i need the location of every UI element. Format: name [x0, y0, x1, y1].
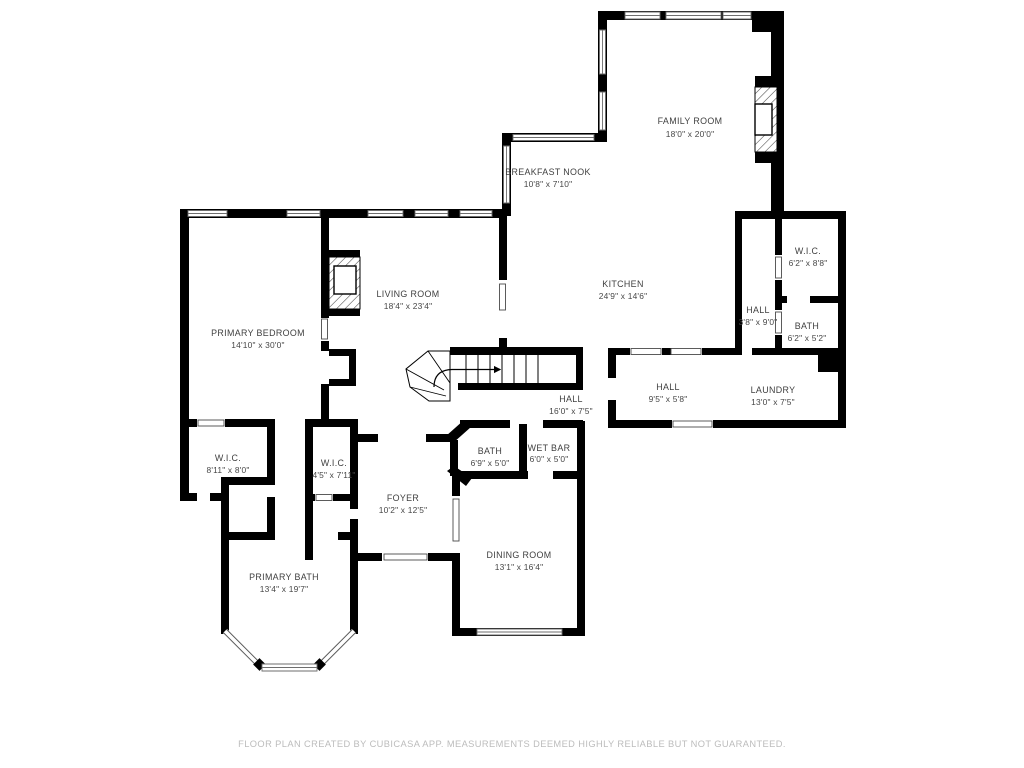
- door: [671, 349, 701, 355]
- room-dims-hall-main: 16'0" x 7'5": [549, 406, 593, 416]
- room-label-laundry: LAUNDRY: [751, 385, 796, 395]
- room-label-family-room: FAMILY ROOM: [658, 116, 723, 126]
- room-dims-bath-right: 6'2" x 5'2": [788, 333, 827, 343]
- room-dims-wic-upper-right: 6'2" x 8'8": [789, 258, 828, 268]
- windows: [188, 12, 751, 635]
- room-dims-hall-right: 3'8" x 9'0": [739, 317, 778, 327]
- window-icon: [666, 12, 721, 19]
- floor-plan-page: FAMILY ROOM 18'0" x 20'0" BREAKFAST NOOK…: [0, 0, 1024, 768]
- room-label-foyer: FOYER: [387, 493, 419, 503]
- room-label-wet-bar: WET BAR: [528, 443, 571, 453]
- bay-window-icon: [223, 629, 355, 671]
- family-room-fireplace-icon: [755, 87, 777, 152]
- door: [198, 420, 224, 426]
- window-icon: [600, 92, 606, 130]
- room-label-kitchen: KITCHEN: [602, 279, 643, 289]
- window-icon: [188, 211, 227, 217]
- window-icon: [287, 211, 320, 217]
- window-icon: [460, 211, 492, 217]
- room-dims-kitchen: 24'9" x 14'6": [599, 291, 648, 301]
- wall-chamfer-upper: [446, 420, 471, 443]
- room-label-primary-bedroom: PRIMARY BEDROOM: [211, 328, 305, 338]
- room-label-hall-right: HALL: [746, 305, 770, 315]
- door: [316, 495, 332, 501]
- room-dims-living-room: 18'4" x 23'4": [384, 301, 433, 311]
- room-label-primary-bath: PRIMARY BATH: [249, 572, 319, 582]
- room-label-dining-room: DINING ROOM: [487, 550, 552, 560]
- room-label-living-room: LIVING ROOM: [376, 289, 439, 299]
- footer-disclaimer: FLOOR PLAN CREATED BY CUBICASA APP. MEAS…: [238, 739, 786, 749]
- room-dims-hall-small: 9'5" x 5'8": [649, 394, 688, 404]
- door: [673, 421, 712, 427]
- room-dims-breakfast-nook: 10'8" x 7'10": [524, 179, 573, 189]
- window-icon: [513, 135, 594, 141]
- room-dims-foyer: 10'2" x 12'5": [379, 505, 428, 515]
- door: [453, 499, 459, 541]
- window-icon: [625, 12, 660, 19]
- door: [631, 349, 661, 355]
- window-icon: [368, 211, 403, 217]
- staircase-icon: [406, 351, 538, 401]
- window-icon: [415, 211, 448, 217]
- room-dims-wic-left: 8'11" x 8'0": [206, 465, 249, 475]
- room-dims-dining-room: 13'1" x 16'4": [495, 562, 544, 572]
- room-dims-wet-bar: 6'0" x 5'0": [530, 454, 569, 464]
- front-entry-door: [384, 554, 427, 560]
- window-icon: [262, 664, 317, 671]
- room-dims-laundry: 13'0" x 7'5": [751, 397, 795, 407]
- room-label-bath-center: BATH: [478, 446, 502, 456]
- floor-plan: FAMILY ROOM 18'0" x 20'0" BREAKFAST NOOK…: [0, 0, 1024, 768]
- living-room-fireplace-icon: [329, 257, 360, 309]
- room-label-hall-small: HALL: [656, 382, 680, 392]
- room-dims-bath-center: 6'9" x 5'0": [471, 458, 510, 468]
- room-dims-family-room: 18'0" x 20'0": [666, 129, 715, 139]
- room-label-bath-right: BATH: [795, 321, 819, 331]
- room-dims-primary-bath: 13'4" x 19'7": [260, 584, 309, 594]
- room-dims-primary-bedroom: 14'10" x 30'0": [231, 340, 284, 350]
- room-label-hall-main: HALL: [559, 394, 583, 404]
- room-label-wic-center: W.I.C.: [321, 458, 347, 468]
- window-icon: [600, 30, 606, 74]
- window-icon: [723, 12, 751, 19]
- door: [776, 257, 782, 278]
- doors: [198, 257, 782, 560]
- room-label-wic-upper-right: W.I.C.: [795, 246, 821, 256]
- door: [500, 284, 506, 310]
- room-label-breakfast-nook: BREAKFAST NOOK: [505, 167, 591, 177]
- room-label-wic-left: W.I.C.: [215, 453, 241, 463]
- door: [322, 319, 328, 339]
- window-icon: [477, 629, 562, 635]
- room-dims-wic-center: 4'5" x 7'11": [312, 470, 355, 480]
